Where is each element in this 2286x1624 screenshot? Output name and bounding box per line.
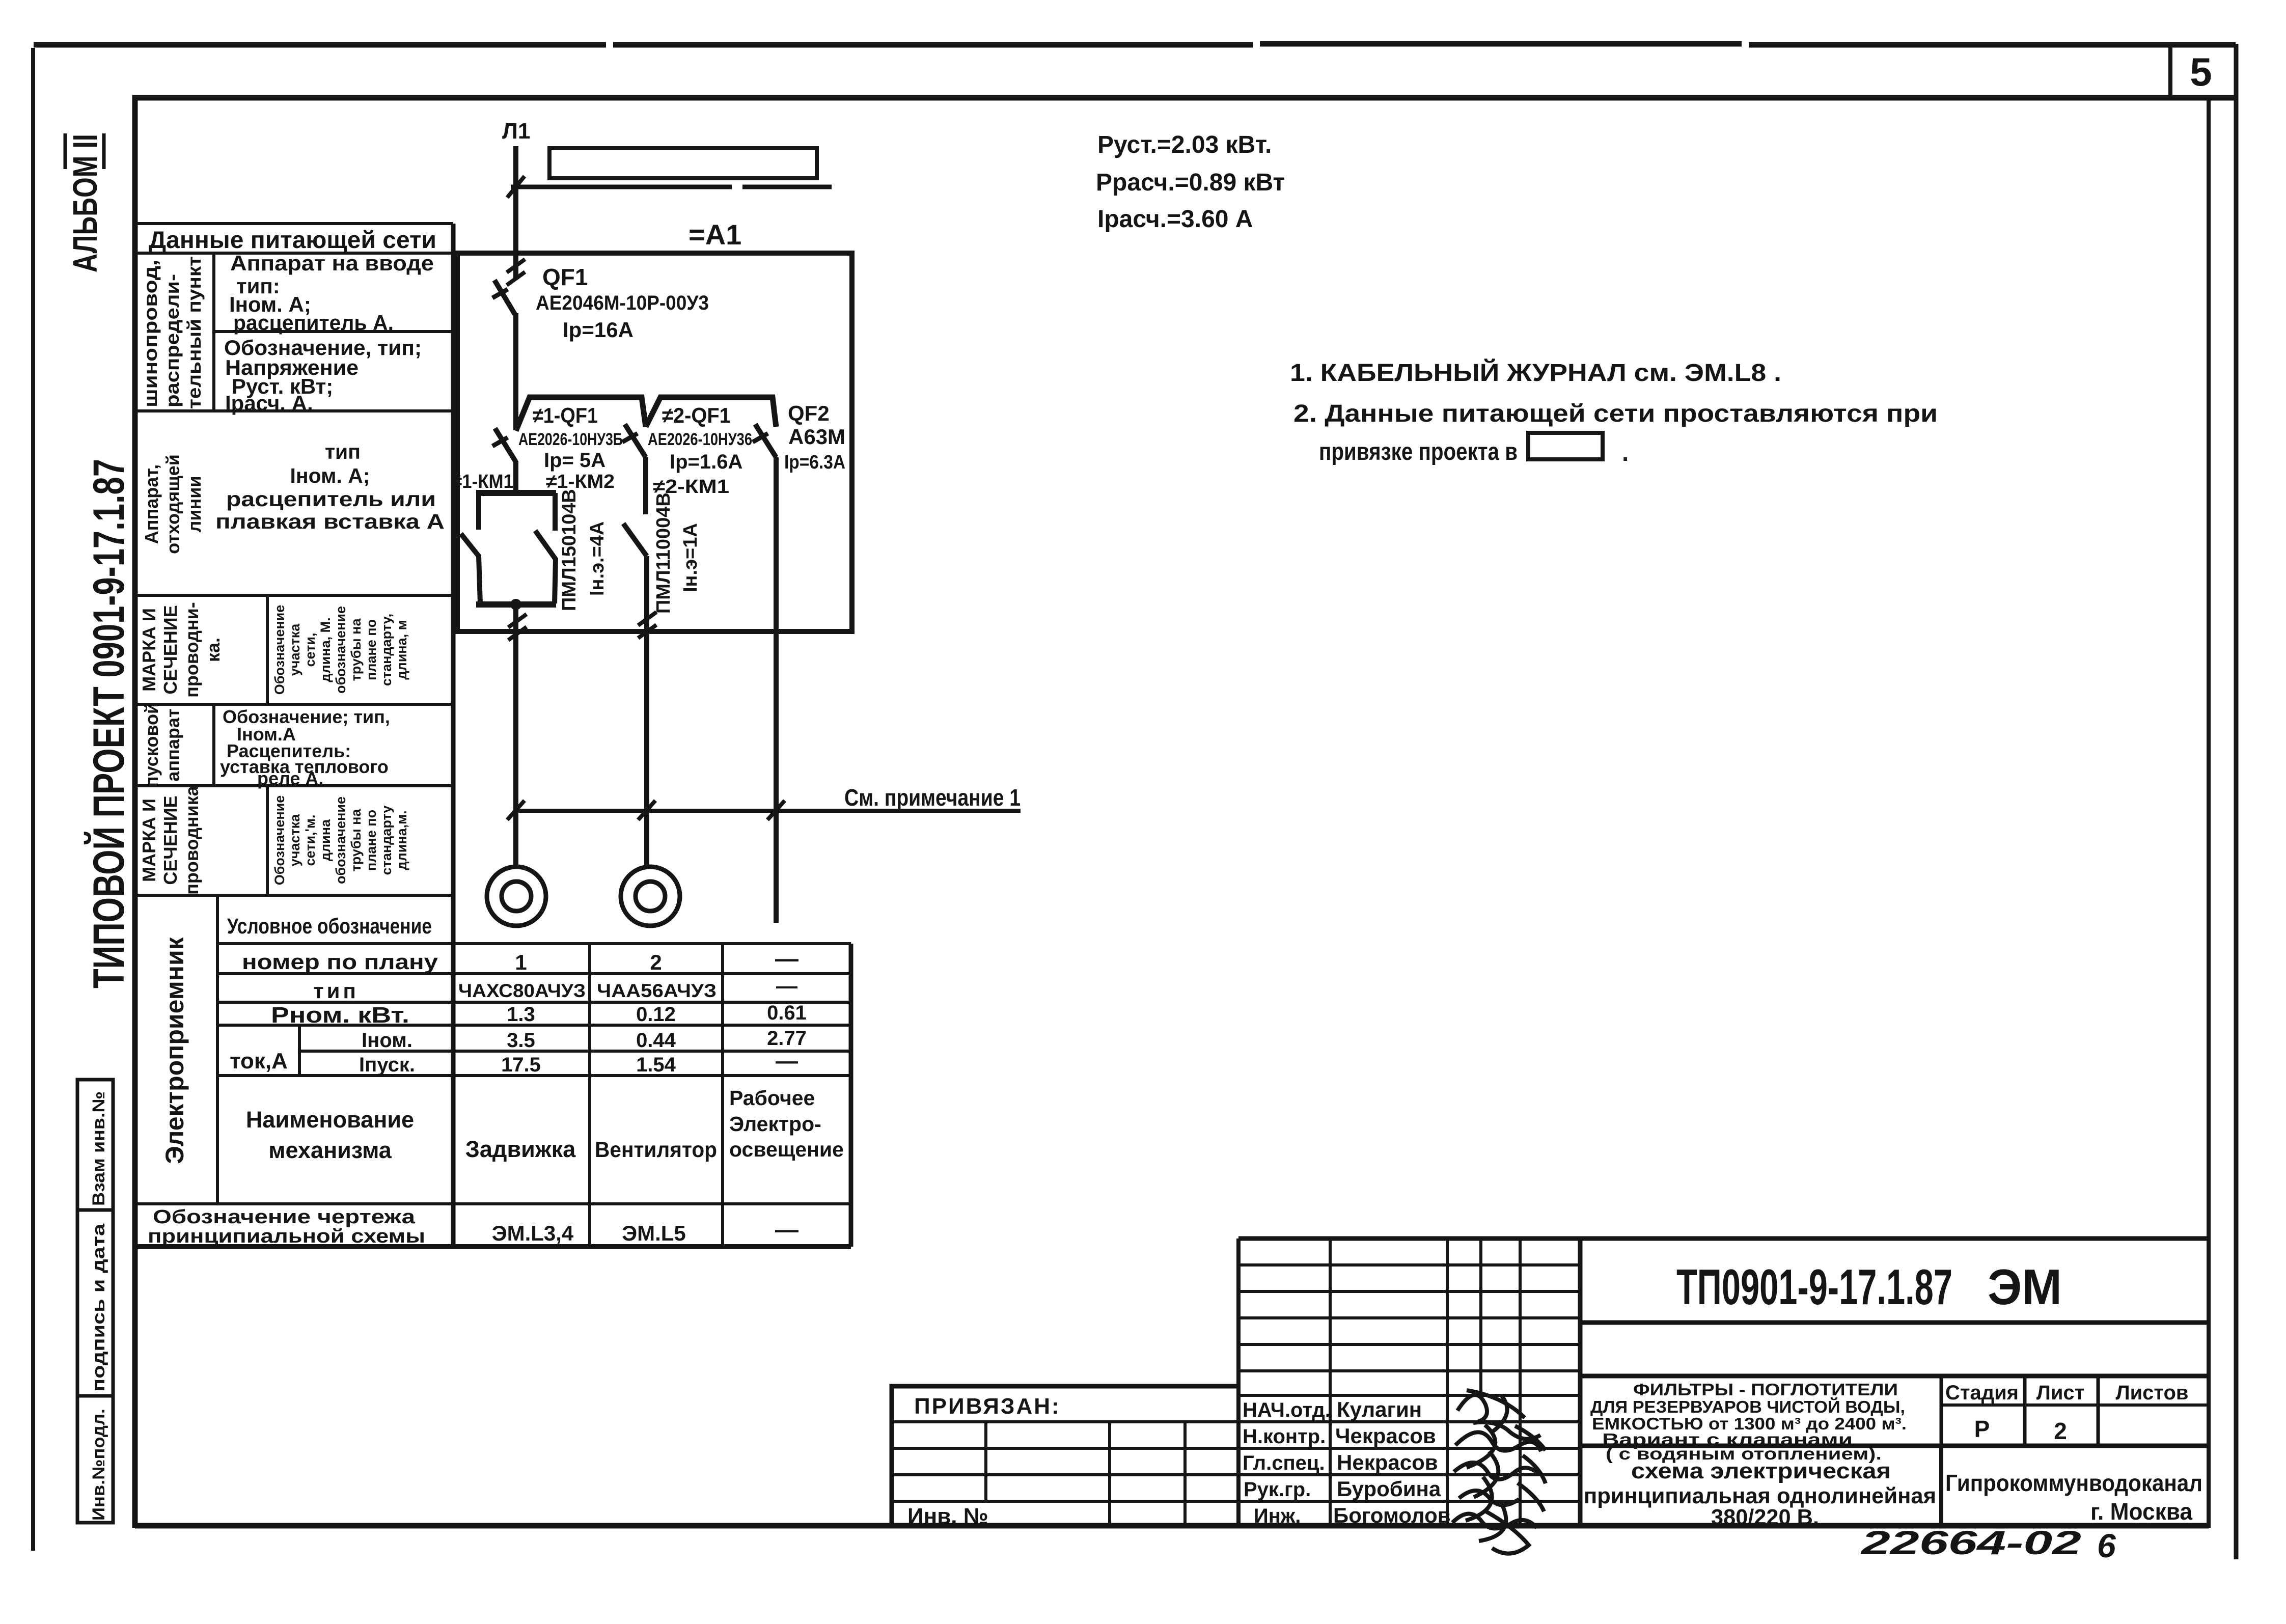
svg-text:МАРКА И: МАРКА И (139, 799, 159, 882)
svg-text:Лист: Лист (2036, 1382, 2085, 1404)
svg-text:ПМЛ110004В: ПМЛ110004В (653, 492, 674, 614)
svg-text:≠1-КМ2: ≠1-КМ2 (546, 471, 615, 492)
svg-text:А63М: А63М (788, 425, 845, 449)
svg-text:отходящей: отходящей (162, 454, 183, 554)
svg-text:АЛЬБОМ II: АЛЬБОМ II (66, 134, 104, 272)
svg-text:Р: Р (1974, 1416, 1990, 1442)
svg-text:СЕЧЕНИЕ: СЕЧЕНИЕ (160, 605, 181, 694)
svg-text:Стадия: Стадия (1945, 1382, 2019, 1404)
svg-text:длина, М.: длина, М. (318, 617, 333, 682)
svg-text:ТИПОВОЙ ПРОЕКТ 0901-9-17.1.87: ТИПОВОЙ ПРОЕКТ 0901-9-17.1.87 (84, 459, 133, 988)
svg-text:Руст.=2.03 кВт.: Руст.=2.03 кВт. (1097, 131, 1272, 158)
svg-text:шинопровод,: шинопровод, (140, 260, 161, 407)
svg-text:Электро-: Электро- (729, 1112, 821, 1136)
svg-text:ДЛЯ РЕЗЕРВУАРОВ ЧИСТОЙ ВОДЫ,: ДЛЯ РЕЗЕРВУАРОВ ЧИСТОЙ ВОДЫ, (1590, 1397, 1905, 1416)
svg-text:трубы на: трубы на (348, 618, 364, 681)
svg-text:плане по: плане по (364, 619, 379, 680)
svg-text:См. примечание 1: См. примечание 1 (844, 784, 1021, 811)
svg-text:распредели-: распредели- (162, 274, 183, 407)
svg-text:длина, м: длина, м (394, 620, 409, 679)
svg-text:ПМЛ150104В: ПМЛ150104В (559, 489, 580, 611)
svg-text:Буробина: Буробина (1337, 1477, 1441, 1501)
svg-text:Iрасч.=3.60 А: Iрасч.=3.60 А (1097, 206, 1253, 233)
svg-text:СЕЧЕНИЕ: СЕЧЕНИЕ (160, 795, 181, 885)
svg-text:Вентилятор: Вентилятор (595, 1138, 717, 1162)
svg-text:расцепитель А.: расцепитель А. (233, 311, 394, 335)
svg-text:Задвижка: Задвижка (465, 1136, 576, 1162)
svg-text:Гипрокоммунводоканал: Гипрокоммунводоканал (1945, 1470, 2202, 1496)
svg-text:проводни-: проводни- (181, 602, 202, 698)
svg-text:0.44: 0.44 (636, 1029, 676, 1052)
svg-text:проводника: проводника (181, 785, 202, 895)
svg-text:механизма: механизма (268, 1137, 392, 1163)
svg-text:обозначение: обозначение (333, 796, 348, 884)
svg-text:2.77: 2.77 (767, 1027, 807, 1050)
svg-text:ТП0901-9-17.1.87: ТП0901-9-17.1.87 (1676, 1259, 1952, 1315)
svg-text:≠2-QF1: ≠2-QF1 (662, 403, 731, 427)
svg-text:линии: линии (184, 476, 205, 532)
svg-text:АЕ2026-10НУ3Б: АЕ2026-10НУ3Б (518, 430, 623, 449)
svg-text:Условное обозначение: Условное обозначение (227, 914, 432, 939)
svg-text:сети,: сети, (302, 633, 318, 667)
svg-text:аппарат: аппарат (162, 708, 183, 781)
svg-text:плавкая вставка А: плавкая вставка А (215, 510, 445, 533)
svg-text:2: 2 (650, 950, 662, 974)
svg-text:Iном. А;: Iном. А; (290, 464, 370, 487)
svg-text:Инв. №: Инв. № (907, 1504, 988, 1529)
svg-text:Данные питающей сети: Данные питающей сети (149, 226, 436, 253)
svg-text:трубы на: трубы на (348, 809, 364, 872)
svg-text:освещение: освещение (729, 1138, 844, 1161)
svg-text:2. Данные питающей сети про: 2. Данные питающей сети проставляются пр… (1293, 400, 1938, 427)
svg-text:Листов: Листов (2116, 1382, 2189, 1404)
svg-text:Ррасч.=0.89 кВт: Ррасч.=0.89 кВт (1096, 169, 1285, 196)
svg-text:Инж.: Инж. (1254, 1505, 1301, 1527)
svg-text:≠1-КМ1: ≠1-КМ1 (452, 471, 513, 492)
svg-text:Обозначение чертежа: Обозначение чертежа (153, 1206, 416, 1228)
svg-text:сети,'м.: сети,'м. (302, 815, 318, 866)
svg-text:реле А.: реле А. (257, 768, 323, 789)
svg-text:=А1: =А1 (688, 218, 741, 251)
svg-text:длина,м.: длина,м. (394, 810, 409, 870)
svg-text:участка: участка (287, 814, 302, 866)
svg-text:Некрасов: Некрасов (1337, 1450, 1438, 1474)
svg-text:1: 1 (515, 950, 527, 974)
svg-text:17.5: 17.5 (501, 1054, 541, 1076)
svg-text:плане по: плане по (364, 810, 379, 871)
svg-text:АЕ2026-10НУ36: АЕ2026-10НУ36 (648, 430, 752, 449)
svg-text:1.54: 1.54 (636, 1054, 676, 1076)
svg-text:Чекрасов: Чекрасов (1335, 1424, 1436, 1448)
svg-text:Рном. кВт.: Рном. кВт. (271, 1003, 409, 1028)
svg-text:расцепитель или: расцепитель или (226, 487, 436, 511)
svg-text:привязке проекта в: привязке проекта в (1319, 438, 1518, 465)
svg-text:стандарту: стандарту (379, 806, 394, 875)
svg-text:ЭМ: ЭМ (1988, 1259, 2062, 1315)
svg-text:Iн.э.=4А: Iн.э.=4А (587, 521, 608, 596)
svg-text:ЭМ.L3,4: ЭМ.L3,4 (492, 1221, 574, 1245)
svg-text:Iном.: Iном. (362, 1029, 412, 1052)
svg-text:Рабочее: Рабочее (729, 1086, 815, 1110)
svg-text:.: . (1622, 439, 1629, 466)
svg-text:ка.: ка. (203, 638, 224, 662)
svg-text:Наименование: Наименование (246, 1107, 414, 1133)
svg-text:1. КАБЕЛЬНЫЙ ЖУРНАЛ см. ЭМ.: 1. КАБЕЛЬНЫЙ ЖУРНАЛ см. ЭМ.L8 . (1290, 359, 1781, 387)
svg-text:Кулагин: Кулагин (1337, 1397, 1422, 1421)
svg-text:г. Москва: г. Москва (2090, 1498, 2192, 1525)
svg-text:ФИЛЬТРЫ - ПОГЛОТИТЕЛИ: ФИЛЬТРЫ - ПОГЛОТИТЕЛИ (1633, 1380, 1898, 1399)
svg-text:0.61: 0.61 (767, 1002, 807, 1024)
svg-text:стандарту,: стандарту, (379, 614, 394, 686)
svg-text:длина: длина (318, 819, 333, 861)
svg-text:подпись и дата: подпись и дата (89, 1223, 108, 1392)
svg-text:Iпуск.: Iпуск. (359, 1054, 415, 1076)
svg-text:Инв.№подл.: Инв.№подл. (89, 1409, 108, 1521)
svg-text:Iр=16А: Iр=16А (563, 318, 634, 342)
svg-text:Iр= 5А: Iр= 5А (544, 449, 605, 472)
svg-text:Iр=1.6А: Iр=1.6А (670, 451, 742, 473)
svg-text:обозначение: обозначение (333, 606, 348, 694)
svg-text:АЕ2046М-10Р-00У3: АЕ2046М-10Р-00У3 (536, 292, 709, 314)
svg-text:участка: участка (287, 623, 302, 676)
svg-text:тельный пункт: тельный пункт (184, 256, 205, 409)
svg-text:Взам инв.№: Взам инв.№ (89, 1091, 108, 1206)
svg-text:тип: тип (325, 440, 361, 463)
svg-text:пусковой: пусковой (141, 703, 162, 787)
svg-text:Iр=6.3А: Iр=6.3А (784, 452, 845, 473)
svg-text:5: 5 (2190, 49, 2212, 94)
svg-text:МАРКА И: МАРКА И (139, 608, 159, 692)
svg-text:22664-02: 22664-02 (1860, 1524, 2082, 1561)
svg-text:Рук.гр.: Рук.гр. (1244, 1478, 1311, 1501)
svg-text:3.5: 3.5 (507, 1029, 535, 1052)
svg-text:Аппарат на вводе: Аппарат на вводе (230, 251, 434, 275)
svg-text:Обозначение: Обозначение (272, 605, 287, 695)
svg-text:—: — (776, 1049, 798, 1074)
svg-text:ЭМ.L5: ЭМ.L5 (622, 1221, 686, 1245)
svg-text:—: — (776, 974, 797, 998)
svg-text:НАЧ.отд.: НАЧ.отд. (1243, 1399, 1331, 1421)
svg-text:Iн.э=1А: Iн.э=1А (680, 523, 701, 592)
svg-text:380/220 В.: 380/220 В. (1711, 1505, 1819, 1530)
svg-text:Л1: Л1 (502, 119, 530, 144)
svg-text:QF2: QF2 (788, 401, 830, 425)
svg-text:Богомолов: Богомолов (1333, 1503, 1451, 1527)
svg-text:ЧАХС80АЧУЗ: ЧАХС80АЧУЗ (458, 980, 586, 1001)
svg-text:Обозначение: Обозначение (272, 795, 287, 886)
svg-text:Iрасч. А.: Iрасч. А. (225, 391, 313, 415)
svg-text:0.12: 0.12 (636, 1003, 676, 1026)
svg-text:≠1-QF1: ≠1-QF1 (533, 403, 598, 427)
svg-text:Гл.спец.: Гл.спец. (1243, 1452, 1325, 1474)
svg-text:—: — (775, 1216, 798, 1243)
svg-text:номер по плану: номер по плану (242, 950, 438, 974)
svg-text:Н.контр.: Н.контр. (1243, 1425, 1326, 1448)
svg-text:—: — (775, 945, 798, 972)
svg-text:ЧАА56АЧУЗ: ЧАА56АЧУЗ (597, 980, 717, 1001)
svg-text:тип: тип (313, 979, 359, 1003)
svg-text:ток,А: ток,А (230, 1049, 288, 1074)
svg-text:Аппарат,: Аппарат, (141, 464, 162, 544)
svg-text:принципиальной схемы: принципиальной схемы (148, 1226, 425, 1247)
svg-text:2: 2 (2054, 1418, 2067, 1444)
svg-text:Электроприемник: Электроприемник (160, 937, 189, 1164)
svg-text:схема электрическая: схема электрическая (1631, 1458, 1891, 1483)
svg-text:ПРИВЯЗАН:: ПРИВЯЗАН: (914, 1394, 1061, 1419)
svg-text:1.3: 1.3 (507, 1003, 535, 1026)
svg-text:QF1: QF1 (542, 264, 588, 290)
svg-text:6: 6 (2097, 1527, 2116, 1564)
